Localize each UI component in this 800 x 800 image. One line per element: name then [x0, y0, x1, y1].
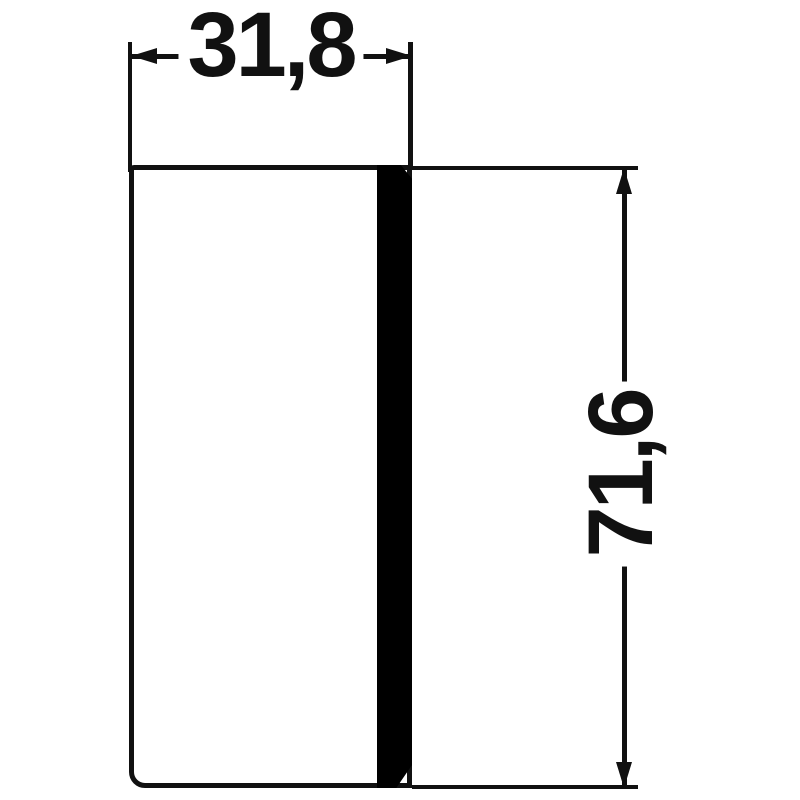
technical-drawing: 31,8 71,6 [0, 0, 800, 800]
part-outline-rectangle [129, 165, 412, 788]
arrow-up-icon [616, 168, 632, 194]
height-extension-line-top [412, 166, 638, 170]
height-extension-line-bottom [412, 785, 638, 789]
height-dimension-label: 71,6 [575, 381, 667, 566]
arrow-right-icon [386, 48, 412, 64]
width-dimension-label: 31,8 [178, 0, 363, 91]
filled-profile-bar [377, 165, 412, 788]
arrow-left-icon [131, 48, 157, 64]
arrow-down-icon [616, 762, 632, 788]
